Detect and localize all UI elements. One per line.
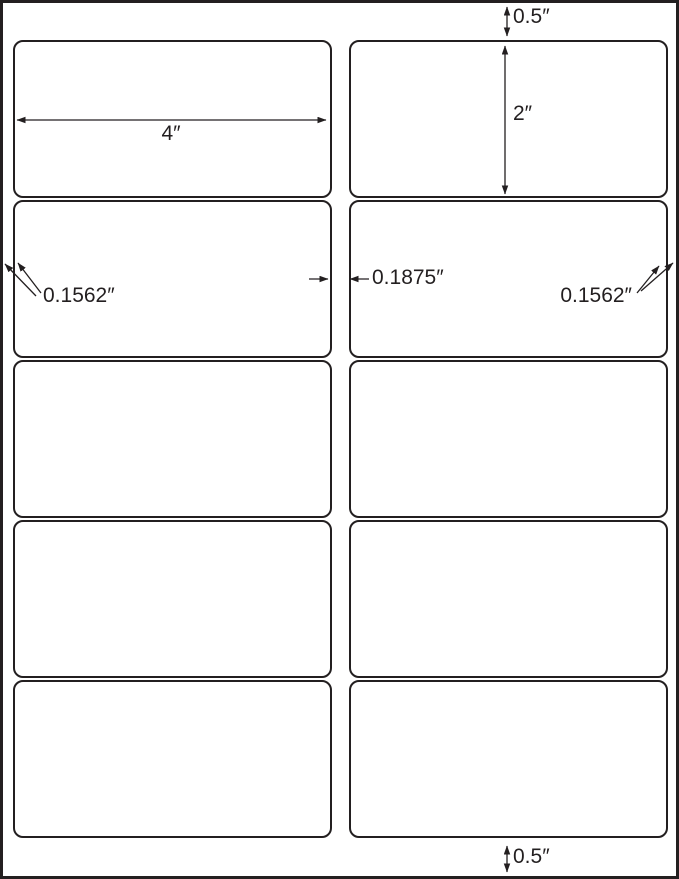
dimension-top-margin: 0.5″ bbox=[513, 6, 550, 29]
dimension-left-margin: 0.1562″ bbox=[43, 285, 115, 308]
label-sheet-template: 0.5″ 2″ 4″ 0.1562″ 0.1875″ 0.1562″ 0.5″ bbox=[0, 0, 679, 879]
label-cell-r3c2 bbox=[349, 360, 668, 518]
label-cell-r4c1 bbox=[13, 520, 332, 678]
dimension-label-width: 4″ bbox=[130, 123, 212, 146]
label-cell-r2c1 bbox=[13, 200, 332, 358]
dimension-right-margin: 0.1562″ bbox=[554, 285, 632, 308]
label-cell-r3c1 bbox=[13, 360, 332, 518]
dimension-bottom-margin: 0.5″ bbox=[513, 846, 550, 869]
label-cell-r1c1 bbox=[13, 40, 332, 198]
dimension-column-gap: 0.1875″ bbox=[372, 267, 444, 290]
labels-grid bbox=[13, 40, 668, 838]
label-cell-r1c2 bbox=[349, 40, 668, 198]
label-cell-r5c1 bbox=[13, 680, 332, 838]
dimension-label-height: 2″ bbox=[513, 103, 532, 126]
label-cell-r4c2 bbox=[349, 520, 668, 678]
label-cell-r5c2 bbox=[349, 680, 668, 838]
